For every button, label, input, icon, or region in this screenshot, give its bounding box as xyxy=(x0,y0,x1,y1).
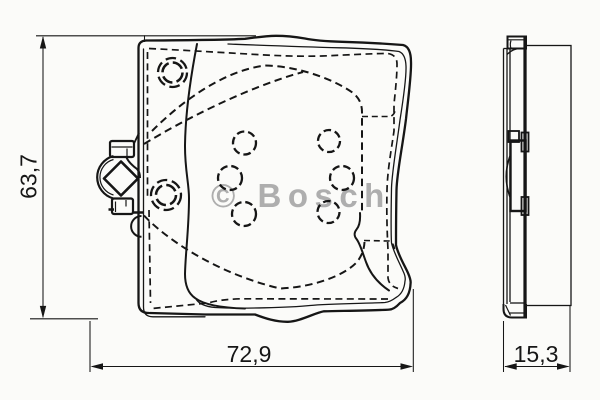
svg-text:© Bosch: © Bosch xyxy=(211,177,391,214)
svg-text:63,7: 63,7 xyxy=(16,154,42,199)
svg-text:15,3: 15,3 xyxy=(514,341,559,367)
svg-text:72,9: 72,9 xyxy=(227,341,272,367)
